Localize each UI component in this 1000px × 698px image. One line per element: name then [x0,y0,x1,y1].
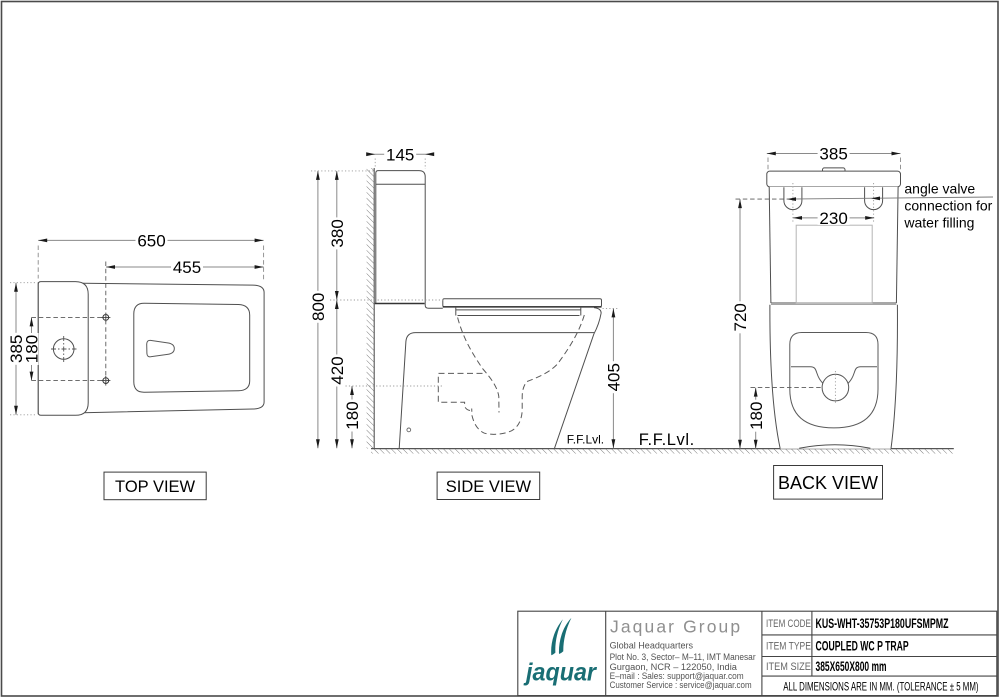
svg-text:ITEM CODE: ITEM CODE [766,618,811,630]
svg-text:405: 405 [605,363,624,391]
svg-text:TOP VIEW: TOP VIEW [115,478,196,496]
svg-text:COUPLED WC P TRAP: COUPLED WC P TRAP [816,639,909,654]
svg-text:650: 650 [137,232,165,251]
svg-text:Customer Service : service@jaq: Customer Service : service@jaquar.com [610,680,752,690]
svg-text:180: 180 [23,335,42,363]
svg-text:ITEM TYPE: ITEM TYPE [766,641,811,653]
svg-text:SIDE VIEW: SIDE VIEW [446,478,532,496]
svg-text:145: 145 [386,145,414,164]
svg-text:F.F.Lvl.: F.F.Lvl. [567,433,604,447]
svg-text:ITEM SIZE: ITEM SIZE [766,661,811,673]
svg-text:Plot No. 3, Sector– M–11, IMT: Plot No. 3, Sector– M–11, IMT Manesar [610,652,756,662]
svg-text:jaquar: jaquar [523,659,597,687]
svg-text:385X650X800 mm: 385X650X800 mm [816,659,887,674]
svg-text:230: 230 [819,209,847,228]
svg-text:800: 800 [309,293,328,321]
svg-text:455: 455 [173,258,201,277]
svg-text:angle valve: angle valve [904,180,975,196]
svg-text:385: 385 [819,145,847,164]
svg-text:380: 380 [328,219,347,247]
svg-text:BACK VIEW: BACK VIEW [778,473,878,493]
svg-text:Global Headquarters: Global Headquarters [610,641,694,651]
svg-text:ALL DIMENSIONS ARE IN MM. (TOL: ALL DIMENSIONS ARE IN MM. (TOLERANCE ± 5… [783,679,978,693]
svg-text:connection for: connection for [904,197,992,213]
svg-text:720: 720 [731,303,750,331]
svg-text:water filling: water filling [903,215,974,231]
svg-text:KUS-WHT-35753P180UFSMPMZ: KUS-WHT-35753P180UFSMPMZ [816,616,949,631]
svg-text:F.F.Lvl.: F.F.Lvl. [639,431,695,449]
svg-text:420: 420 [328,356,347,384]
svg-text:Jaquar Group: Jaquar Group [610,616,742,636]
svg-text:180: 180 [343,401,362,429]
svg-text:180: 180 [747,402,766,430]
